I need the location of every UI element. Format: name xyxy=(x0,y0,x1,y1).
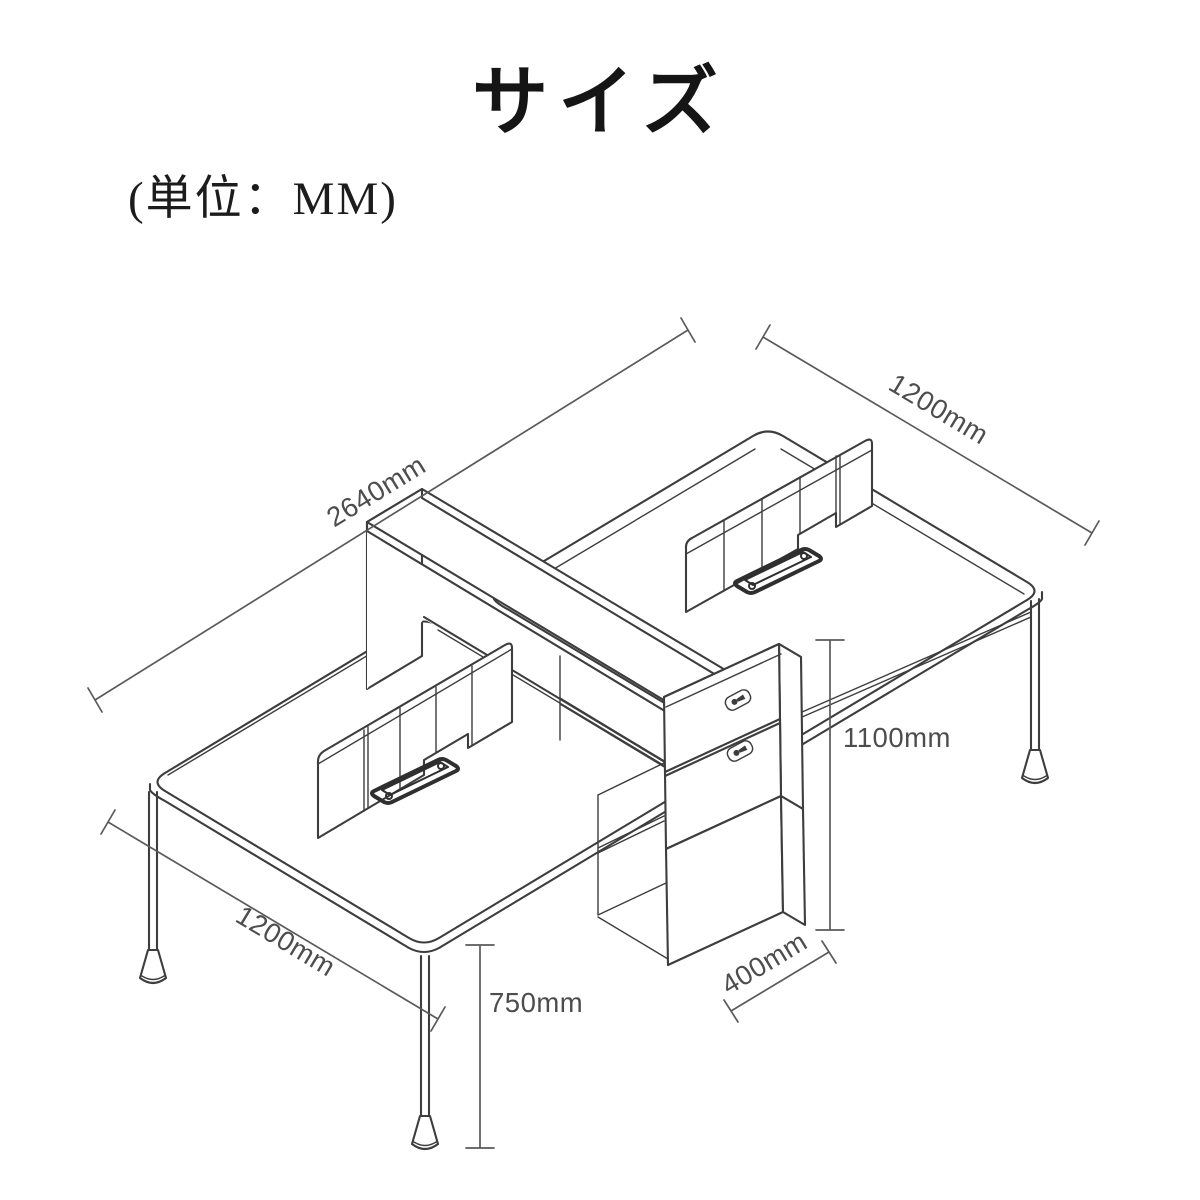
pedestal-right-face xyxy=(779,644,803,809)
left-desk-leg-west xyxy=(149,792,157,950)
dimension-line xyxy=(466,945,494,1148)
left-desk-leg-west-foot xyxy=(140,950,166,983)
dimension-label: 1100mm xyxy=(843,722,951,753)
dimension-desk-height: 750mm xyxy=(466,945,583,1148)
page-title: サイズ xyxy=(472,61,728,145)
dimension-label: 1200mm xyxy=(884,367,994,450)
unit-note: (単位：MM) xyxy=(128,173,398,225)
right-desk-leg-foot xyxy=(1022,750,1048,783)
dimension-label: 750mm xyxy=(489,987,583,1018)
size-diagram-page: サイズ (単位：MM) xyxy=(0,0,1200,1200)
right-desk-leg xyxy=(1031,599,1039,750)
dimension-cabinet-width: 400mm xyxy=(716,925,836,1022)
left-desk-leg-south xyxy=(421,956,429,1116)
floor-cabinet-right xyxy=(781,796,805,925)
dimension-drawing: サイズ (単位：MM) xyxy=(0,0,1200,1200)
dimension-label: 1200mm xyxy=(231,899,341,982)
left-desk-leg-south-foot xyxy=(412,1116,438,1149)
drawer-pedestal xyxy=(664,644,805,965)
